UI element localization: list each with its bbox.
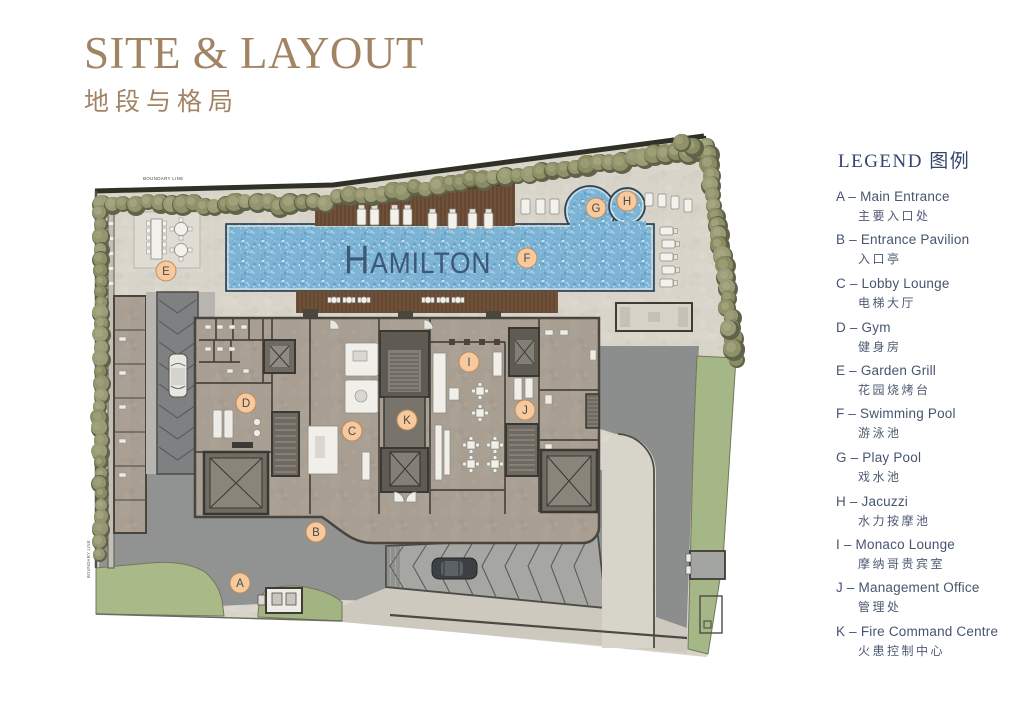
svg-text:J: J xyxy=(522,405,528,417)
svg-text:G: G xyxy=(592,203,601,215)
svg-text:C: C xyxy=(348,426,356,438)
svg-text:F: F xyxy=(523,253,530,265)
svg-text:D: D xyxy=(242,398,250,410)
svg-text:I: I xyxy=(467,357,470,369)
svg-text:A: A xyxy=(236,578,244,590)
svg-text:BOUNDARY LINE: BOUNDARY LINE xyxy=(143,176,184,181)
svg-text:E: E xyxy=(162,266,170,278)
svg-text:B: B xyxy=(312,527,320,539)
svg-text:BOUNDARY LINE: BOUNDARY LINE xyxy=(86,540,91,578)
svg-text:H: H xyxy=(623,196,631,208)
svg-text:K: K xyxy=(403,415,411,427)
